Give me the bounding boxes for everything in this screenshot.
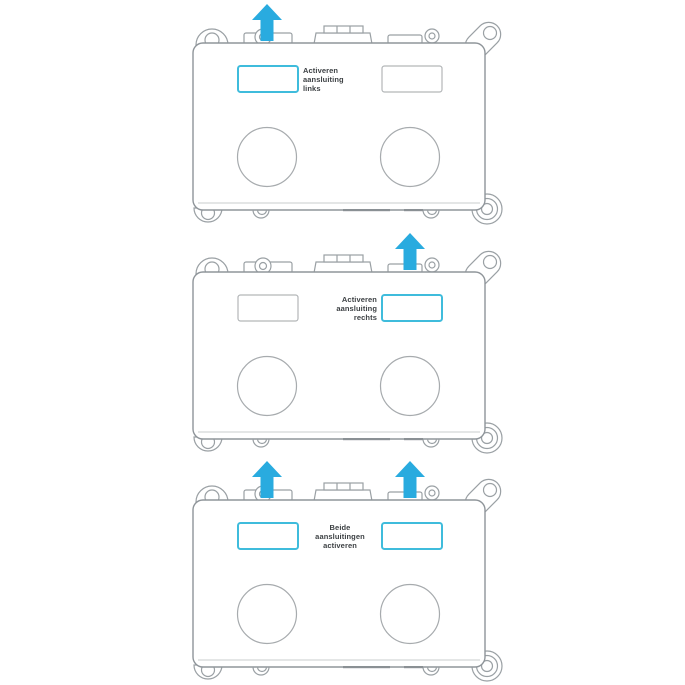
device-illustration-1 bbox=[0, 0, 685, 231]
left-connection-button bbox=[238, 66, 298, 92]
left-connection-button bbox=[238, 523, 298, 549]
device-illustration-2 bbox=[0, 228, 685, 460]
caption-line: aansluiting bbox=[272, 304, 377, 313]
figure-activate-left: Activeren aansluiting links bbox=[0, 0, 685, 231]
caption-line: links bbox=[303, 84, 395, 93]
figure-caption: Activeren aansluiting rechts bbox=[272, 295, 377, 322]
right-connection-button bbox=[382, 295, 442, 321]
caption-line: Beide bbox=[294, 523, 386, 532]
figure-activate-right: Activeren aansluiting rechts bbox=[0, 228, 685, 460]
device-drawing bbox=[193, 246, 506, 453]
device-drawing bbox=[193, 474, 506, 681]
caption-line: Activeren bbox=[272, 295, 377, 304]
caption-line: aansluitingen bbox=[294, 532, 386, 541]
caption-line: rechts bbox=[272, 313, 377, 322]
caption-line: aansluiting bbox=[303, 75, 395, 84]
figure-caption: Activeren aansluiting links bbox=[303, 66, 395, 93]
caption-line: Activeren bbox=[303, 66, 395, 75]
device-illustration-3 bbox=[0, 456, 685, 685]
caption-line: activeren bbox=[294, 541, 386, 550]
right-connection-button bbox=[382, 523, 442, 549]
instruction-diagram-page: Activeren aansluiting links Activeren aa… bbox=[0, 0, 685, 685]
device-drawing bbox=[193, 17, 506, 224]
figure-caption: Beide aansluitingen activeren bbox=[294, 523, 386, 550]
figure-activate-both: Beide aansluitingen activeren bbox=[0, 456, 685, 685]
